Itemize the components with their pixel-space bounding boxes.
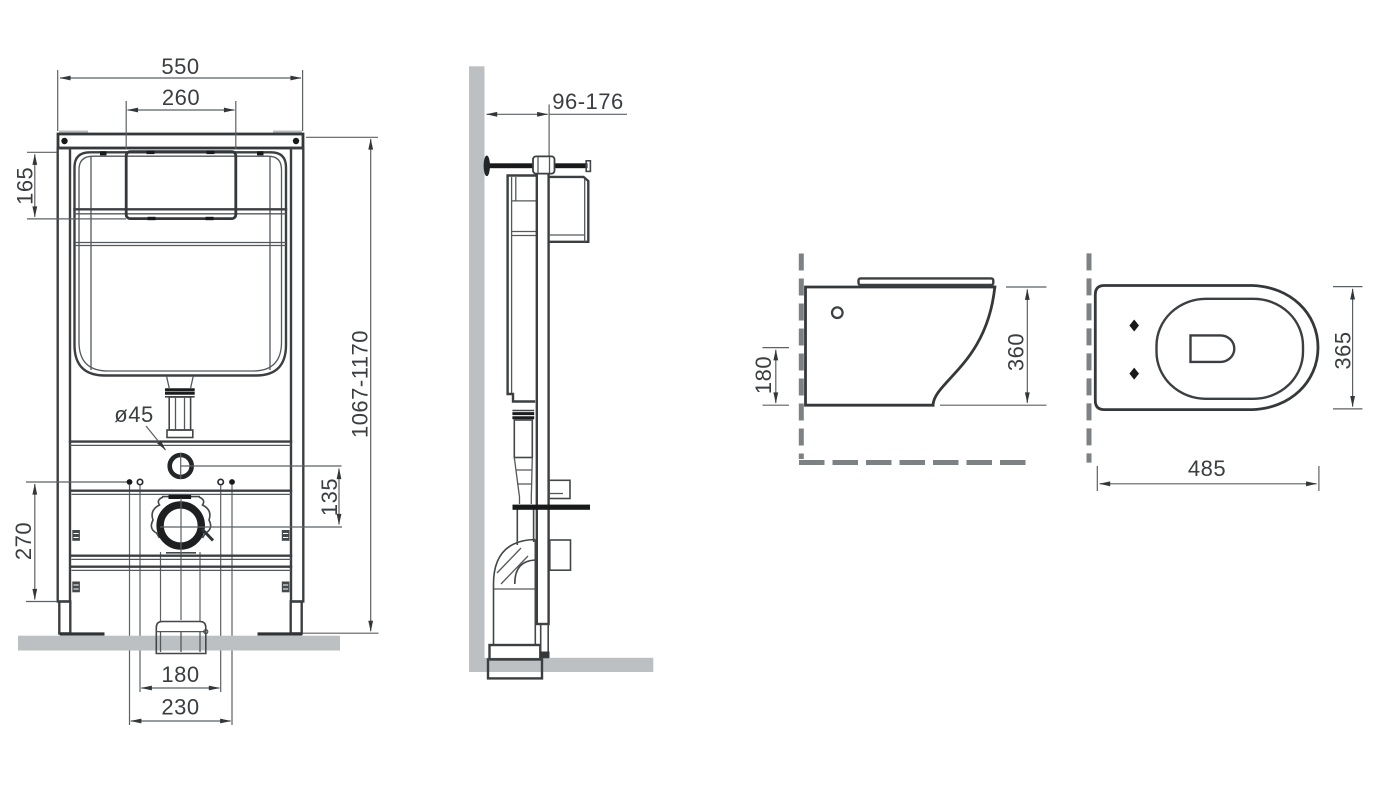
svg-text:180: 180 [751, 356, 776, 394]
svg-text:260: 260 [162, 85, 200, 110]
svg-text:ø45: ø45 [114, 402, 153, 427]
svg-text:96-176: 96-176 [552, 89, 624, 114]
svg-text:165: 165 [13, 167, 38, 205]
svg-text:365: 365 [1331, 331, 1356, 369]
svg-text:180: 180 [161, 662, 199, 687]
svg-text:270: 270 [11, 522, 36, 560]
svg-text:135: 135 [317, 478, 342, 516]
svg-text:1067-1170: 1067-1170 [348, 330, 373, 438]
svg-text:230: 230 [161, 695, 199, 720]
svg-text:485: 485 [1188, 456, 1226, 481]
svg-text:550: 550 [161, 54, 199, 79]
svg-text:360: 360 [1004, 333, 1029, 371]
